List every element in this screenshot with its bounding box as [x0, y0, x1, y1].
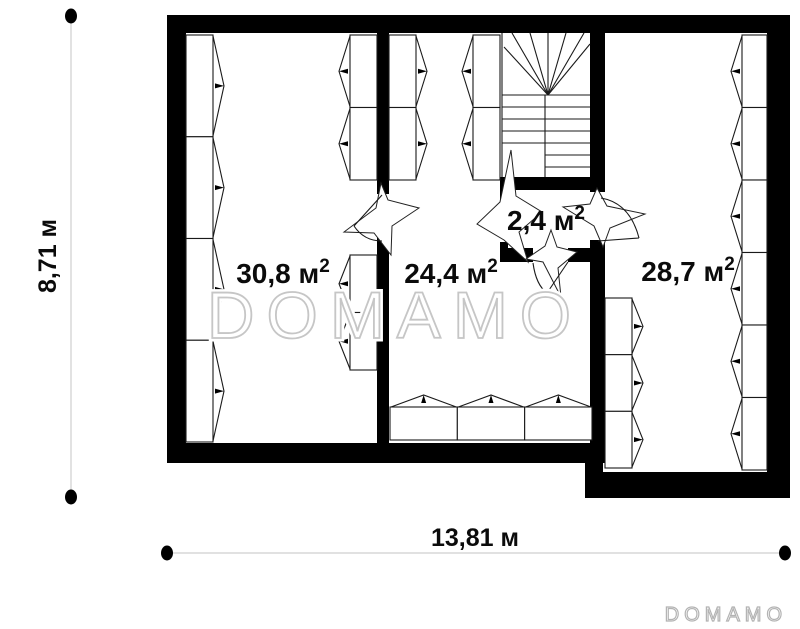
brand-logo: DOMAMO DOMAMO	[665, 604, 787, 626]
wardrobe-section	[350, 35, 377, 108]
wardrobe-section	[389, 108, 416, 181]
watermark-text: DOMAMO	[207, 278, 583, 352]
wardrobe-section	[742, 108, 767, 181]
wardrobe-section	[605, 355, 632, 412]
wardrobe-section	[742, 398, 767, 471]
wardrobe-section	[186, 340, 213, 442]
wall-partition-upper	[377, 33, 389, 194]
wardrobe-section	[186, 35, 213, 137]
watermark: DOMAMO DOMAMO	[207, 278, 583, 352]
room-label-28-7: 28,7 м2	[641, 254, 735, 287]
wardrobe-section	[742, 180, 767, 253]
wardrobe-section	[525, 407, 592, 440]
wardrobe-section	[186, 137, 213, 239]
dimension-endpoint-dot	[779, 546, 791, 561]
dimension-endpoint-dot	[65, 9, 77, 24]
wall-stairs-bottom	[500, 177, 605, 190]
wardrobe-section	[605, 298, 632, 355]
wall-bottom-main	[167, 443, 605, 463]
wardrobe-section	[473, 108, 500, 181]
dimension-endpoint-dot	[65, 490, 77, 505]
wall-bottom-extension	[585, 472, 790, 498]
dimension-horizontal-label: 13,81 м	[431, 524, 519, 552]
wardrobe-section	[605, 411, 632, 468]
wardrobe-section	[742, 35, 767, 108]
wall-left	[167, 15, 186, 463]
room-label-2-4: 2,4 м2	[507, 203, 585, 236]
wardrobe-section	[390, 407, 457, 440]
brand-logo-text: DOMAMO	[665, 604, 787, 626]
wardrobe-section	[389, 35, 416, 108]
wardrobe-section	[742, 325, 767, 398]
floor-plan-page: 8,71 м 13,81 м	[0, 0, 800, 629]
wardrobe-section	[457, 407, 524, 440]
wall-right	[767, 15, 790, 498]
floor-plan-canvas: 8,71 м 13,81 м	[0, 0, 800, 629]
wall-extension-left	[585, 443, 603, 498]
wall-top	[167, 15, 790, 33]
wardrobe-section	[742, 253, 767, 326]
dimension-endpoint-dot	[161, 546, 173, 561]
wardrobe-section	[350, 108, 377, 181]
dimension-vertical-label: 8,71 м	[34, 219, 62, 293]
wardrobe-section	[473, 35, 500, 108]
wall-divider-upper	[590, 33, 605, 192]
